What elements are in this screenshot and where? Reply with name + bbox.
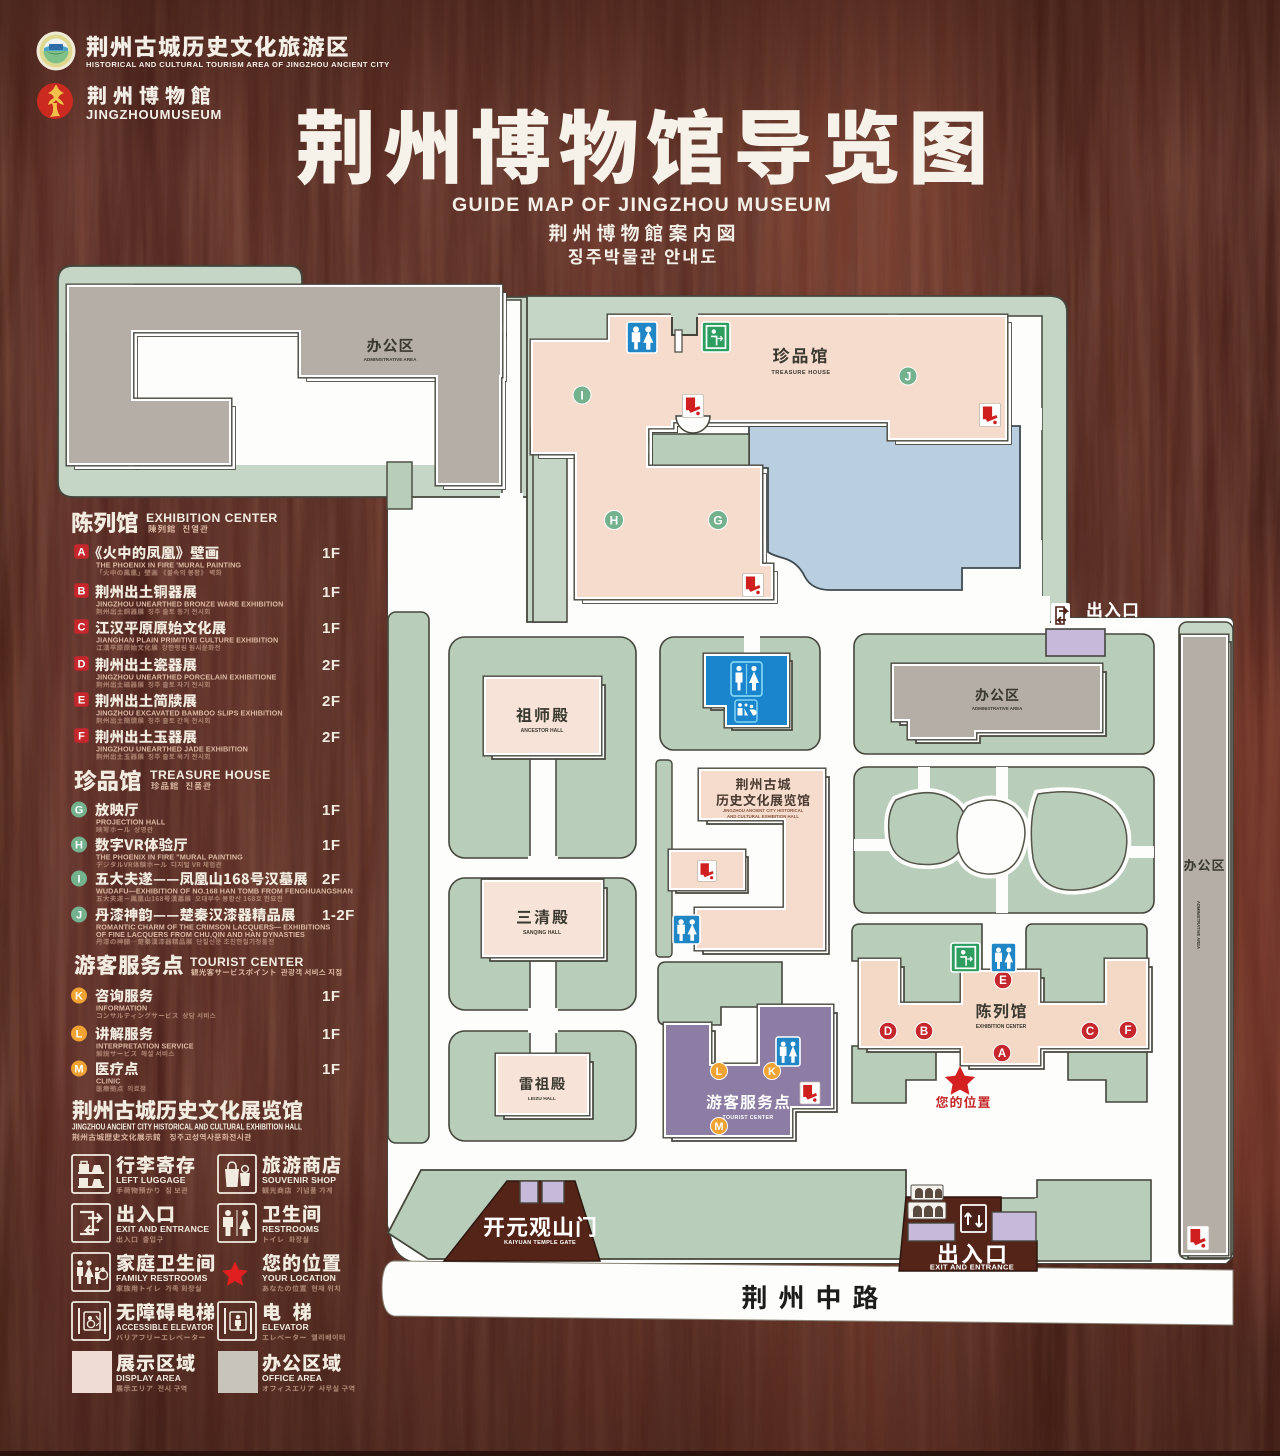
svg-text:SANQING HALL: SANQING HALL xyxy=(523,930,561,936)
svg-text:TOURIST CENTER: TOURIST CENTER xyxy=(722,1115,773,1121)
svg-text:G: G xyxy=(713,513,722,527)
svg-text:INFORMATION: INFORMATION xyxy=(96,1004,147,1013)
svg-text:OF FINE LACQUERS FROM CHU,QIN: OF FINE LACQUERS FROM CHU,QIN AND HAN DY… xyxy=(96,930,305,939)
svg-text:THE PHOENIX IN FIRE 'MURAL PAI: THE PHOENIX IN FIRE 'MURAL PAINTING xyxy=(96,561,241,570)
svg-text:1F: 1F xyxy=(322,988,341,1005)
svg-text:1F: 1F xyxy=(322,1061,341,1078)
svg-text:2F: 2F xyxy=(322,657,341,674)
svg-text:FAMILY RESTROOMS: FAMILY RESTROOMS xyxy=(116,1273,208,1283)
svg-text:WUDAFU—EXHIBITION OF NO.168 HA: WUDAFU—EXHIBITION OF NO.168 HAN TOMB FRO… xyxy=(96,887,353,896)
svg-text:PROJECTION HALL: PROJECTION HALL xyxy=(96,818,166,827)
svg-text:YOUR LOCATION: YOUR LOCATION xyxy=(262,1273,336,1283)
svg-text:H: H xyxy=(75,839,83,851)
svg-text:JINGZHOU ANCIENT CITY HISTORIC: JINGZHOU ANCIENT CITY HISTORICAL AND CUL… xyxy=(72,1122,302,1132)
svg-text:I: I xyxy=(580,388,583,402)
svg-text:LEFT LUGGAGE: LEFT LUGGAGE xyxy=(116,1175,186,1185)
svg-text:RESTROOMS: RESTROOMS xyxy=(262,1224,319,1234)
svg-text:ADMINISTRATIVE AREA: ADMINISTRATIVE AREA xyxy=(1196,901,1201,949)
svg-text:JINGZHOUMUSEUM: JINGZHOUMUSEUM xyxy=(86,107,222,122)
svg-text:AND CULTURAL EXHIBITION HALL: AND CULTURAL EXHIBITION HALL xyxy=(727,814,799,819)
svg-text:C: C xyxy=(78,621,86,633)
svg-text:2F: 2F xyxy=(322,693,341,710)
svg-text:ADMINISTRATIVE AREA: ADMINISTRATIVE AREA xyxy=(972,706,1023,711)
svg-text:TREASURE HOUSE: TREASURE HOUSE xyxy=(150,768,271,782)
svg-text:ACCESSIBLE ELEVATOR: ACCESSIBLE ELEVATOR xyxy=(116,1323,214,1332)
svg-text:ADMINISTRATIVE AREA: ADMINISTRATIVE AREA xyxy=(364,357,418,362)
svg-text:JIANGHAN PLAIN PRIMITIVE CULTU: JIANGHAN PLAIN PRIMITIVE CULTURE EXHIBIT… xyxy=(96,636,278,645)
svg-text:G: G xyxy=(75,804,84,816)
svg-text:M: M xyxy=(74,1063,83,1075)
svg-text:EXIT AND ENTRANCE: EXIT AND ENTRANCE xyxy=(930,1263,1014,1272)
svg-text:TREASURE HOUSE: TREASURE HOUSE xyxy=(771,370,830,376)
svg-text:1F: 1F xyxy=(322,1026,341,1043)
svg-text:B: B xyxy=(78,585,86,597)
svg-text:F: F xyxy=(78,730,85,742)
svg-text:D: D xyxy=(78,658,86,670)
svg-text:L: L xyxy=(716,1066,723,1078)
svg-text:1-2F: 1-2F xyxy=(322,907,355,924)
svg-text:1F: 1F xyxy=(322,620,341,637)
svg-text:1F: 1F xyxy=(322,584,341,601)
svg-text:A: A xyxy=(78,546,86,558)
svg-text:EXIT AND ENTRANCE: EXIT AND ENTRANCE xyxy=(1080,622,1152,629)
svg-text:A: A xyxy=(998,1048,1006,1060)
svg-text:JINGZHOU EXCAVATED BAMBOO SLIP: JINGZHOU EXCAVATED BAMBOO SLIPS EXHIBITI… xyxy=(96,709,283,718)
svg-text:D: D xyxy=(884,1026,892,1038)
svg-text:EXHIBITION CENTER: EXHIBITION CENTER xyxy=(976,1024,1027,1030)
svg-text:J: J xyxy=(76,909,82,921)
svg-text:K: K xyxy=(768,1066,776,1078)
svg-text:F: F xyxy=(1124,1025,1131,1037)
svg-text:HISTORICAL AND CULTURAL TOURIS: HISTORICAL AND CULTURAL TOURISM AREA OF … xyxy=(86,60,390,69)
svg-text:JINGZHOU ANCIENT CITY HISTORIC: JINGZHOU ANCIENT CITY HISTORICAL xyxy=(723,808,804,813)
svg-text:GUIDE MAP OF JINGZHOU MUSEUM: GUIDE MAP OF JINGZHOU MUSEUM xyxy=(452,194,832,216)
svg-text:C: C xyxy=(1086,1026,1094,1038)
svg-text:E: E xyxy=(999,975,1007,987)
svg-text:ELEVATOR: ELEVATOR xyxy=(262,1322,310,1332)
svg-text:CLINIC: CLINIC xyxy=(96,1077,121,1086)
svg-text:TOURIST CENTER: TOURIST CENTER xyxy=(190,955,304,969)
svg-text:JINGZHOU UNEARTHED JADE EXHIBI: JINGZHOU UNEARTHED JADE EXHIBITION xyxy=(96,745,248,754)
svg-text:I: I xyxy=(77,873,80,885)
svg-text:L: L xyxy=(76,1028,83,1040)
svg-text:OFFICE AREA: OFFICE AREA xyxy=(262,1373,322,1383)
svg-text:1F: 1F xyxy=(322,837,341,854)
svg-text:SOUVENIR SHOP: SOUVENIR SHOP xyxy=(262,1175,336,1185)
svg-text:INTERPRETATION SERVICE: INTERPRETATION SERVICE xyxy=(96,1042,194,1051)
svg-text:B: B xyxy=(920,1026,928,1038)
svg-text:1F: 1F xyxy=(322,545,341,562)
svg-text:ANCESTOR HALL: ANCESTOR HALL xyxy=(521,728,564,734)
svg-text:1F: 1F xyxy=(322,802,341,819)
svg-text:H: H xyxy=(610,513,619,527)
svg-text:2F: 2F xyxy=(322,871,341,888)
svg-text:K: K xyxy=(75,990,83,1002)
svg-text:DISPLAY AREA: DISPLAY AREA xyxy=(116,1373,181,1383)
svg-text:EXHIBITION CENTER: EXHIBITION CENTER xyxy=(146,511,278,525)
svg-text:EXIT AND ENTRANCE: EXIT AND ENTRANCE xyxy=(116,1224,209,1234)
svg-text:M: M xyxy=(714,1121,723,1133)
svg-text:JINGZHOU UNEARTHED BRONZE WARE: JINGZHOU UNEARTHED BRONZE WARE EXHIBITIO… xyxy=(96,600,283,609)
svg-text:THE PHOENIX IN FIRE "MURAL PAI: THE PHOENIX IN FIRE "MURAL PAINTING xyxy=(96,853,243,862)
svg-text:E: E xyxy=(78,694,85,706)
svg-text:JINGZHOU UNEARTHED PORCELAIN E: JINGZHOU UNEARTHED PORCELAIN EXHIBITIONE xyxy=(96,673,277,682)
svg-text:J: J xyxy=(905,369,912,383)
svg-text:2F: 2F xyxy=(322,729,341,746)
svg-text:KAIYUAN TEMPLE GATE: KAIYUAN TEMPLE GATE xyxy=(504,1240,576,1246)
svg-text:LEIZU HALL: LEIZU HALL xyxy=(528,1096,556,1102)
